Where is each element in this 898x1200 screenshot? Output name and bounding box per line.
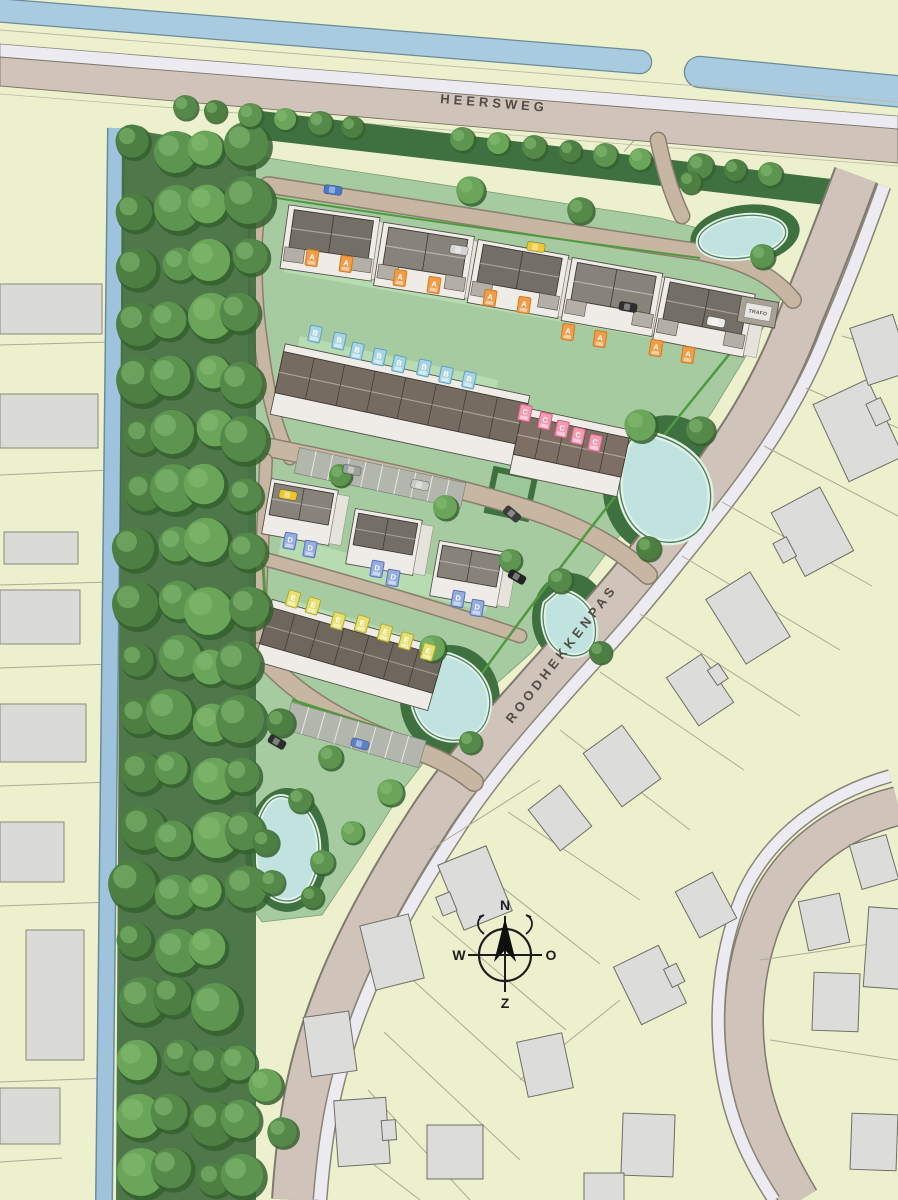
plot-tag-A[interactable]: A bbox=[305, 249, 319, 267]
compass-west: W bbox=[452, 947, 466, 963]
plot-tag-C[interactable]: C bbox=[587, 434, 602, 452]
plot-tag-B[interactable]: B bbox=[371, 348, 386, 366]
site-plan-map: TRAFO AAAAAAAAAABBBBBBBBCCCCCDDDDDDEEEEE… bbox=[0, 0, 898, 1200]
plot-tag-A[interactable]: A bbox=[517, 296, 531, 314]
plot-tag-A[interactable]: A bbox=[593, 330, 607, 348]
plot-tag-B[interactable]: B bbox=[331, 332, 346, 350]
compass-south: Z bbox=[501, 995, 510, 1011]
plot-tag-A[interactable]: A bbox=[681, 346, 695, 364]
plot-tag-B[interactable]: B bbox=[416, 359, 431, 377]
plot-tag-D[interactable]: D bbox=[470, 599, 485, 617]
plot-tag-A[interactable]: A bbox=[393, 269, 407, 287]
plot-tag-A[interactable]: A bbox=[561, 323, 575, 341]
plot-tag-C[interactable]: C bbox=[517, 404, 532, 422]
plot-tag-C[interactable]: C bbox=[537, 412, 552, 430]
compass-east: O bbox=[546, 947, 557, 963]
plot-tag-A[interactable]: A bbox=[339, 255, 353, 273]
plot-tag-B[interactable]: B bbox=[391, 355, 406, 373]
plot-tag-D[interactable]: D bbox=[303, 540, 318, 558]
plot-tag-B[interactable]: B bbox=[461, 371, 476, 389]
plot-tag-D[interactable]: D bbox=[386, 569, 401, 587]
plot-tag-B[interactable]: B bbox=[438, 366, 453, 384]
plot-tag-C[interactable]: C bbox=[554, 420, 569, 438]
site-plan: TRAFO AAAAAAAAAABBBBBBBBCCCCCDDDDDDEEEEE… bbox=[0, 0, 898, 1200]
canal-north-east bbox=[700, 72, 898, 92]
plot-tag-D[interactable]: D bbox=[370, 560, 385, 578]
plot-tag-D[interactable]: D bbox=[451, 590, 466, 608]
plot-tag-A[interactable]: A bbox=[427, 276, 441, 294]
plot-tag-A[interactable]: A bbox=[649, 339, 663, 357]
compass-north: N bbox=[500, 897, 510, 913]
plot-tag-D[interactable]: D bbox=[283, 532, 298, 550]
plot-tag-A[interactable]: A bbox=[483, 289, 497, 307]
plot-tag-B[interactable]: B bbox=[349, 342, 364, 360]
plot-tag-C[interactable]: C bbox=[570, 427, 585, 445]
plot-tag-B[interactable]: B bbox=[307, 325, 322, 343]
